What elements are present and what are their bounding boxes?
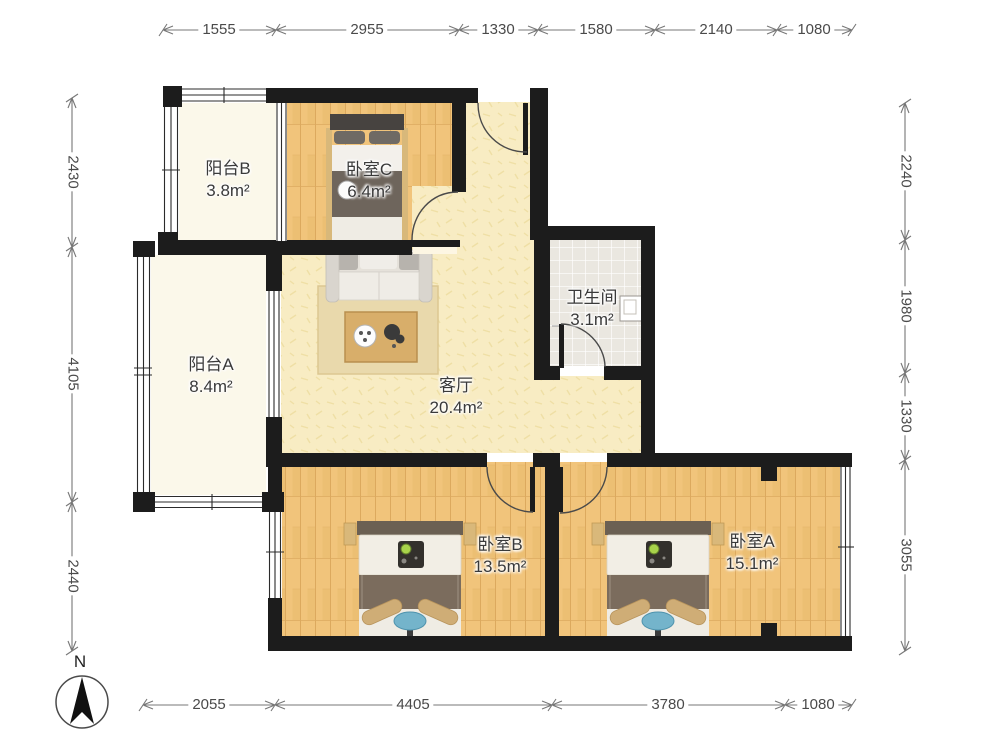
room-area: 3.8m² (205, 180, 250, 202)
room-area: 8.4m² (188, 376, 233, 398)
dim-bottom-1: 2055 (188, 697, 229, 714)
balcony-a-living-slider (267, 291, 281, 417)
dim-right-4: 3055 (897, 535, 914, 574)
north-label: N (74, 652, 86, 672)
dim-top-4: 1580 (575, 22, 616, 39)
balcony-a-bottom-window (155, 494, 262, 510)
balcony-b-bedroom-c-window (276, 103, 287, 241)
room-area: 20.4m² (430, 397, 483, 419)
dim-bottom-4: 1080 (797, 697, 838, 714)
room-area: 3.1m² (567, 309, 618, 331)
balcony-b-top-window (182, 87, 266, 103)
dim-bottom-3: 3780 (647, 697, 688, 714)
bedroom-b-left-window (266, 512, 284, 598)
dim-right-2: 1980 (897, 286, 914, 325)
nightstand (344, 523, 356, 545)
dim-left-1: 2430 (64, 152, 81, 191)
balcony-b-left-window (162, 107, 180, 232)
room-name: 卧室A (726, 531, 779, 553)
balcony-a-left-window (134, 257, 152, 492)
room-label-living-room: 客厅 20.4m² (430, 375, 483, 419)
dim-left-3: 2440 (64, 556, 81, 595)
room-name: 阳台B (205, 158, 250, 180)
dim-top-3: 1330 (477, 22, 518, 39)
dim-bottom-2: 4405 (392, 697, 433, 714)
room-area: 15.1m² (726, 553, 779, 575)
nightstand (592, 523, 604, 545)
room-name: 卫生间 (567, 287, 618, 309)
dim-top-2: 2955 (346, 22, 387, 39)
compass (56, 676, 108, 728)
dim-top-5: 2140 (695, 22, 736, 39)
bedroom-b-bed (344, 521, 476, 641)
room-label-bedroom-b: 卧室B 13.5m² (474, 534, 527, 578)
room-label-bedroom-c: 卧室C 6.4m² (346, 159, 392, 203)
bedroom-a-bed (592, 521, 724, 641)
room-name: 客厅 (430, 375, 483, 397)
room-area: 13.5m² (474, 556, 527, 578)
dim-right-1: 2240 (897, 151, 914, 190)
nightstand (712, 523, 724, 545)
floor-plan-drawing (0, 0, 990, 743)
floor-plan-page: 阳台B 3.8m² 卧室C 6.4m² 阳台A 8.4m² 客厅 20.4m² … (0, 0, 990, 743)
room-area: 6.4m² (346, 181, 392, 203)
dim-top-1: 1555 (198, 22, 239, 39)
dim-left-2: 4105 (64, 354, 81, 393)
room-label-balcony-a: 阳台A 8.4m² (188, 354, 233, 398)
room-label-balcony-b: 阳台B 3.8m² (205, 158, 250, 202)
room-name: 卧室C (346, 159, 392, 181)
north-arrow-icon (70, 677, 94, 724)
dim-right-3: 1330 (897, 396, 914, 435)
bedroom-a-right-window (838, 467, 854, 636)
dim-top-6: 1080 (793, 22, 834, 39)
room-label-bathroom: 卫生间 3.1m² (567, 287, 618, 331)
room-name: 阳台A (188, 354, 233, 376)
room-label-bedroom-a: 卧室A 15.1m² (726, 531, 779, 575)
living-room-sofa-set (318, 250, 438, 374)
room-name: 卧室B (474, 534, 527, 556)
